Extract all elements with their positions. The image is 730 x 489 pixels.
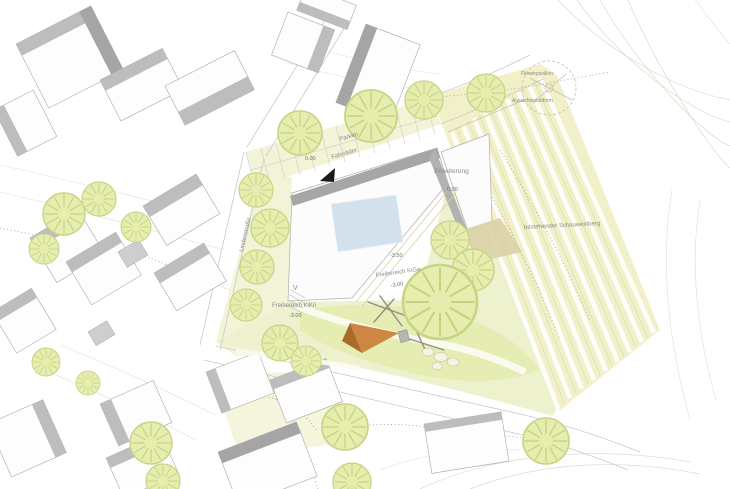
entry-level-label: 0.00 (305, 156, 316, 162)
tree (239, 173, 273, 207)
existing-building (165, 51, 254, 126)
boulder (434, 353, 448, 362)
tree (43, 193, 85, 235)
boulder (447, 358, 459, 366)
tree (405, 81, 443, 119)
tree (523, 418, 569, 464)
tree (29, 234, 59, 264)
spot-level-label: -3.50 (390, 253, 403, 259)
site-plan-canvas: Lindenstraße Parken Fahrräder 0.00 V Erw… (0, 0, 730, 489)
kiga-level-label: -3.00 (390, 281, 403, 289)
existing-building (0, 288, 56, 353)
tree (322, 404, 368, 450)
viewing-platform-label: Aussichtsplattform (512, 98, 553, 104)
storeys-label: V (293, 285, 298, 292)
extension-level-label: 0.00 (447, 187, 458, 193)
tree (251, 209, 289, 247)
kikri-level-label: -3.00 (289, 313, 302, 319)
garage (88, 321, 115, 346)
tree (333, 463, 371, 489)
extension-label: Erweiterung (434, 168, 469, 175)
entry-arrow-icon (320, 168, 335, 182)
tree (121, 212, 151, 242)
tree (82, 182, 116, 216)
existing-building (143, 174, 220, 245)
tree (467, 74, 505, 112)
tree (240, 250, 274, 284)
tree (76, 371, 100, 395)
tree (291, 346, 321, 376)
tree (130, 422, 172, 464)
tree (403, 265, 477, 339)
tree (278, 111, 322, 155)
boulder (432, 363, 442, 370)
existing-building (0, 400, 66, 477)
kikri-open-space-label: Freibereich KiKri (272, 303, 316, 309)
boulder (422, 348, 434, 356)
site-plan: Lindenstraße Parken Fahrräder 0.00 V Erw… (0, 0, 730, 489)
pavilion-label: Flowerpavillon (521, 71, 553, 77)
existing-building (154, 243, 226, 311)
tree (230, 289, 262, 321)
tree (32, 348, 60, 376)
skylight (331, 195, 403, 252)
